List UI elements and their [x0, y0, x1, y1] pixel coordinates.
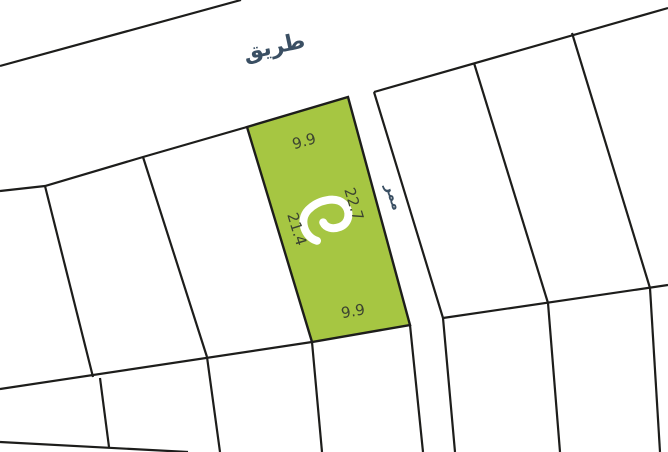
- lower-divider-2: [207, 357, 220, 452]
- right-block-top-edge: [374, 8, 668, 92]
- road-label: طريق: [241, 28, 307, 65]
- road-upper-edge: [0, 0, 241, 66]
- right-block-bottom-boundary: [443, 285, 668, 318]
- plot-map: طريقممر9.922.721.49.9: [0, 0, 668, 452]
- plot-map-svg: طريقممر9.922.721.49.9: [0, 0, 668, 452]
- left-divider-1: [45, 186, 93, 377]
- lower-divider-5: [650, 288, 660, 452]
- left-block-bottom-boundary: [0, 342, 312, 389]
- lower-divider-1: [100, 378, 109, 447]
- lower-divider-3: [312, 342, 322, 452]
- left-divider-2: [143, 157, 207, 357]
- bottom-left-boundary: [0, 442, 188, 452]
- highlighted-plot: [247, 97, 410, 342]
- highlighted-plot-group: [247, 97, 410, 342]
- passage-left-edge-lower: [410, 325, 423, 452]
- right-divider-2: [572, 33, 650, 288]
- right-divider-1: [474, 63, 548, 303]
- lower-divider-4: [548, 303, 560, 452]
- passage-label: ممر: [381, 181, 404, 212]
- left-block-top-edge: [0, 127, 247, 191]
